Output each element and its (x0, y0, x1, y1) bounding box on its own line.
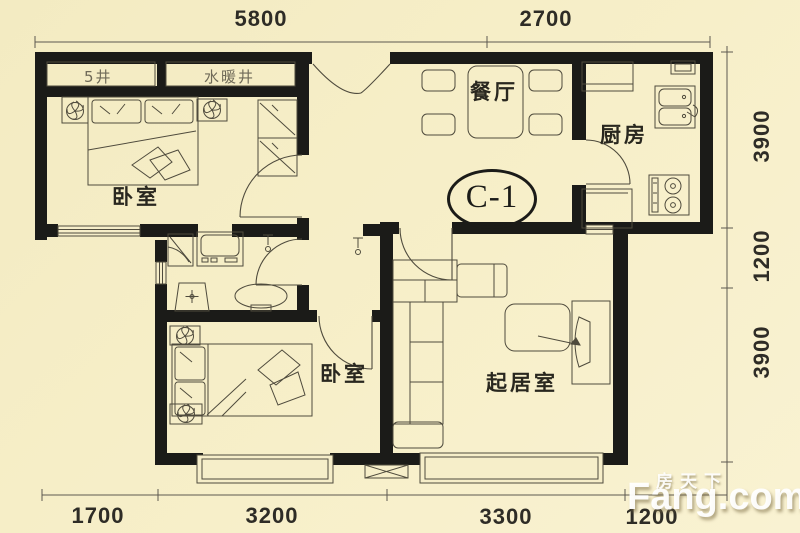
bathroom-door (256, 239, 302, 285)
washing-machine (197, 232, 243, 266)
dimension-right-upper: 3900 (749, 96, 775, 176)
window-bath-west (156, 262, 166, 284)
floor-plan: 5800 2700 3900 1200 3900 1700 3200 3300 … (0, 0, 800, 533)
coffee-table (505, 304, 570, 351)
dimension-right-middle: 1200 (749, 216, 775, 296)
walls (35, 52, 713, 465)
kitchen-stove (649, 175, 689, 215)
nightstand-fan-left (62, 97, 88, 123)
nightstand-fan-top (170, 326, 200, 345)
room-label-dining: 餐厅 (470, 76, 518, 106)
bay-window-living (420, 453, 603, 483)
living-room-door (400, 228, 452, 280)
dimension-right-lower: 3900 (749, 312, 775, 392)
dimension-top-right: 2700 (500, 6, 592, 32)
room-label-living: 起居室 (486, 367, 558, 397)
room-label-bedroom2: 卧室 (320, 358, 368, 388)
room-label-kitchen: 厨房 (600, 119, 648, 149)
dimension-bottom-2: 3200 (232, 503, 312, 529)
kitchen-sink (655, 86, 698, 128)
toilet (235, 284, 287, 311)
window-bedroom1-south (58, 226, 140, 236)
nightstand-fan-right (197, 99, 227, 121)
window-kitchen-south (586, 225, 613, 234)
bay-window-bedroom2 (197, 455, 333, 483)
entry-door (313, 64, 390, 93)
shaft-label-5: 5井 (84, 66, 113, 87)
hose-bib-2 (353, 238, 363, 255)
wardrobe-bedroom1 (258, 100, 297, 176)
bed-double-bedroom2 (172, 344, 312, 416)
sofa-sectional (393, 260, 507, 448)
kitchen-counter-upper (582, 62, 633, 91)
ac-platform (365, 465, 408, 478)
pedestal-sink (175, 283, 209, 311)
shaft-label-plumbing: 水暖井 (204, 66, 255, 87)
hose-bib-1 (263, 235, 273, 252)
corner-shelf (168, 234, 193, 266)
dimension-bottom-3: 3300 (466, 504, 546, 530)
dimension-bottom-1: 1700 (58, 503, 138, 529)
floor-plan-drawing (0, 0, 800, 533)
unit-type-badge: C-1 (447, 169, 537, 229)
bed-double-bedroom1 (88, 97, 198, 185)
watermark-fang-logo: Fang.com (627, 476, 800, 519)
dimension-top-left: 5800 (215, 6, 307, 32)
room-label-bedroom1: 卧室 (112, 181, 160, 211)
bedroom1-door (240, 155, 302, 217)
